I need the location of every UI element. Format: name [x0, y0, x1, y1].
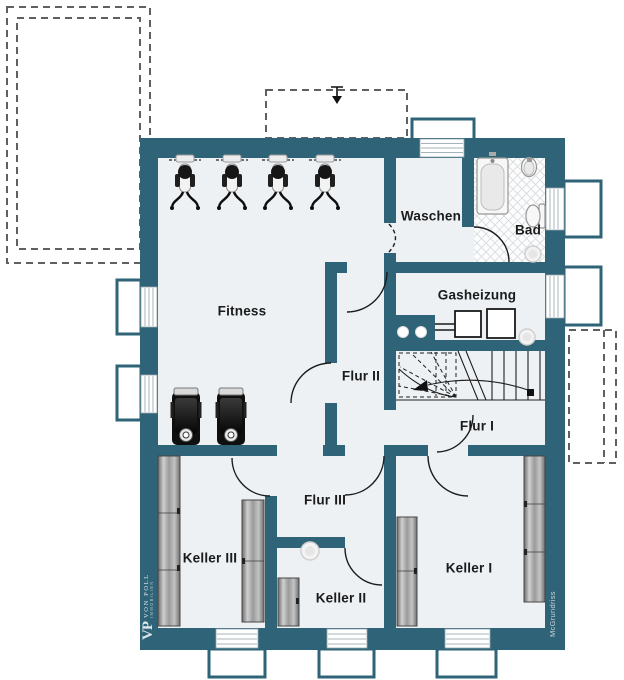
room-label-flur2: Flur II	[342, 369, 380, 384]
vonpoll-logo: VP VON POLL IMMOBILIEN	[139, 543, 158, 645]
room-label-keller1: Keller I	[446, 561, 493, 576]
garage-dashed-outline	[7, 7, 150, 263]
sink-icon	[522, 158, 537, 177]
shelf-keller1-right	[524, 456, 545, 602]
mcgrundriss-watermark: McGrundriss	[548, 575, 563, 637]
window-right-gasheizung	[546, 275, 564, 318]
window-top	[420, 139, 464, 157]
window-left-2	[141, 375, 157, 413]
shelf-keller3-left	[158, 456, 180, 626]
room-label-keller2: Keller II	[316, 591, 367, 606]
vonpoll-monogram: VP	[140, 622, 157, 640]
room-label-gasheizung: Gasheizung	[438, 288, 517, 303]
window-bottom-2	[327, 629, 367, 648]
room-label-fitness: Fitness	[218, 304, 267, 319]
treadmill-icon	[216, 388, 247, 445]
window-right-bad	[546, 188, 564, 230]
shelf-keller2	[278, 578, 299, 626]
vonpoll-subtitle: IMMOBILIEN	[150, 573, 155, 618]
window-left-1	[141, 287, 157, 327]
ceiling-lamp-icon	[525, 246, 541, 262]
ceiling-lamp-icon	[301, 542, 319, 560]
terrace-dashed-outline	[569, 330, 616, 463]
room-label-waschen: Waschen	[401, 209, 461, 224]
room-label-bad: Bad	[515, 223, 541, 238]
floorplan-drawing	[0, 0, 624, 680]
window-bottom-1	[216, 629, 258, 648]
room-label-flur1: Flur I	[460, 419, 494, 434]
bathtub-icon	[477, 152, 508, 214]
window-bottom-3	[445, 629, 490, 648]
treadmill-icon	[171, 388, 202, 445]
floorplan-canvas: Fitness Waschen Bad Gasheizung Flur I Fl…	[0, 0, 624, 680]
room-label-keller3: Keller III	[183, 551, 238, 566]
ceiling-lamp-icon	[519, 329, 535, 345]
room-label-flur3: Flur III	[304, 493, 346, 508]
